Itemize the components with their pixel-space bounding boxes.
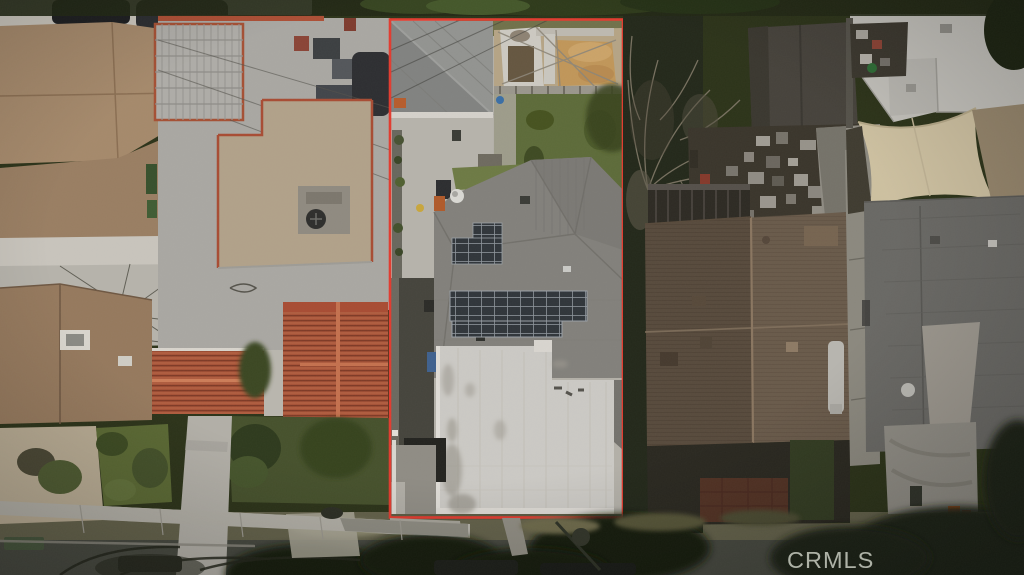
- svg-text:CRMLS: CRMLS: [787, 547, 874, 573]
